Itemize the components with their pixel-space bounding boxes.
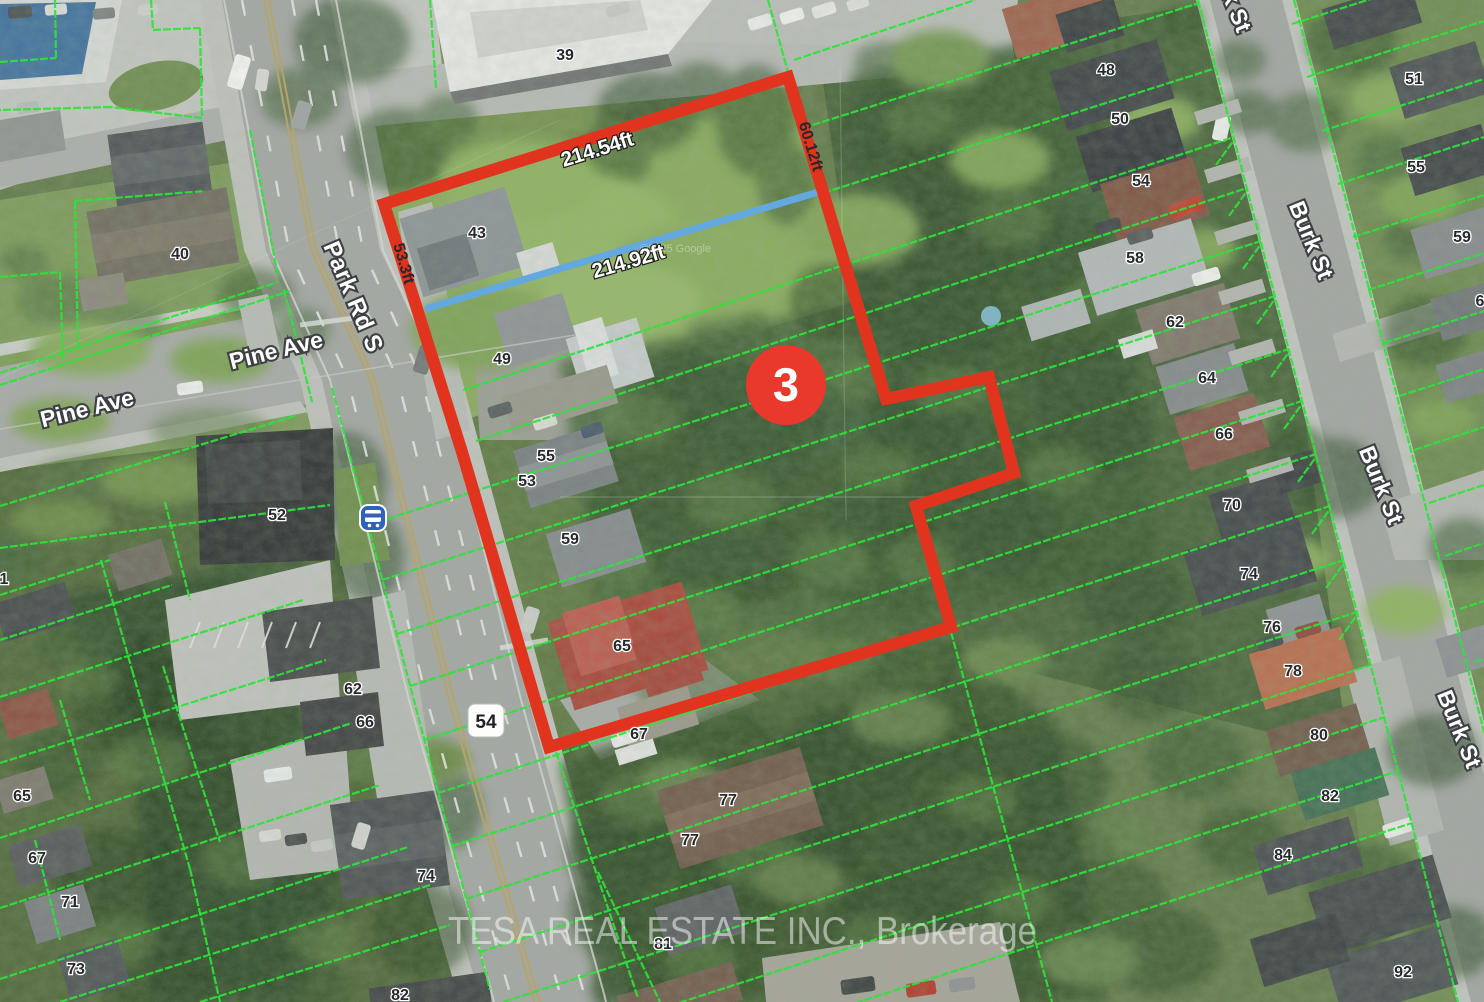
svg-text:52: 52 xyxy=(268,507,286,524)
svg-text:70: 70 xyxy=(1223,497,1241,514)
svg-text:39: 39 xyxy=(556,47,574,64)
svg-text:50: 50 xyxy=(1111,111,1129,128)
svg-text:64: 64 xyxy=(1198,370,1216,387)
svg-text:1: 1 xyxy=(0,571,9,588)
svg-text:43: 43 xyxy=(468,225,486,242)
svg-text:58: 58 xyxy=(1126,250,1144,267)
svg-text:82: 82 xyxy=(1321,788,1339,805)
svg-text:6: 6 xyxy=(1476,293,1484,310)
svg-text:59: 59 xyxy=(561,531,579,548)
svg-text:65: 65 xyxy=(613,638,631,655)
svg-text:80: 80 xyxy=(1310,727,1328,744)
svg-text:77: 77 xyxy=(719,792,737,809)
svg-text:54: 54 xyxy=(475,712,497,733)
svg-text:62: 62 xyxy=(1166,314,1184,331)
svg-text:40: 40 xyxy=(171,246,189,263)
svg-text:54: 54 xyxy=(1132,173,1150,190)
svg-text:73: 73 xyxy=(67,961,85,978)
svg-text:65: 65 xyxy=(13,788,31,805)
svg-text:92: 92 xyxy=(1394,964,1412,981)
svg-text:3: 3 xyxy=(773,358,799,411)
svg-text:TESA REAL ESTATE INC., Brokera: TESA REAL ESTATE INC., Brokerage xyxy=(448,910,1037,953)
svg-text:67: 67 xyxy=(630,726,648,743)
svg-text:48: 48 xyxy=(1097,62,1115,79)
svg-text:78: 78 xyxy=(1284,663,1302,680)
svg-text:51: 51 xyxy=(1405,71,1423,88)
svg-text:82: 82 xyxy=(391,987,409,1002)
svg-text:©2025 Google: ©2025 Google xyxy=(640,243,711,255)
svg-text:62: 62 xyxy=(344,681,362,698)
svg-text:59: 59 xyxy=(1453,229,1471,246)
svg-text:74: 74 xyxy=(1240,566,1258,583)
svg-text:49: 49 xyxy=(493,351,511,368)
svg-text:74: 74 xyxy=(417,868,435,885)
svg-text:66: 66 xyxy=(1215,426,1233,443)
svg-text:53: 53 xyxy=(518,473,536,490)
svg-text:76: 76 xyxy=(1263,619,1281,636)
svg-text:55: 55 xyxy=(537,448,555,465)
svg-text:66: 66 xyxy=(356,714,374,731)
svg-text:84: 84 xyxy=(1274,847,1292,864)
svg-text:77: 77 xyxy=(681,832,699,849)
svg-text:55: 55 xyxy=(1407,159,1425,176)
svg-text:71: 71 xyxy=(61,894,79,911)
svg-text:67: 67 xyxy=(28,850,46,867)
